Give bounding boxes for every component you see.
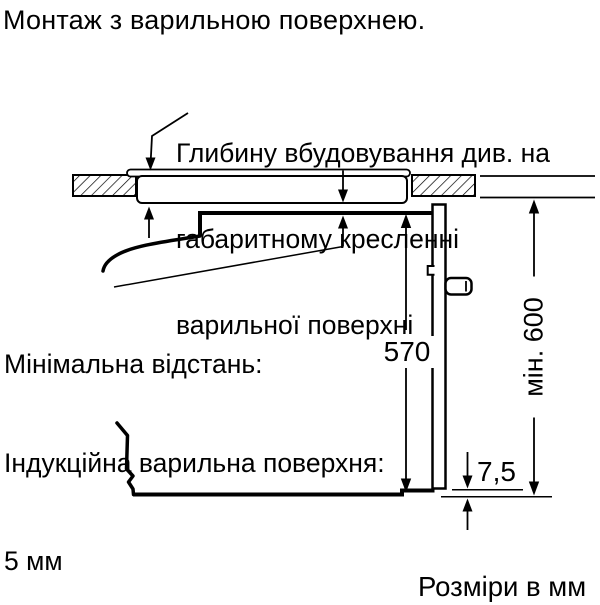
arrowhead-up-icon [463,499,473,512]
countertop-left-hatch [73,175,136,196]
arrowhead-down-icon [463,476,473,489]
dim-label-570: 570 [378,336,436,368]
arrowhead-up-icon [144,207,154,220]
min-distance-line: 5 мм [4,545,405,578]
min-distance-line: Індукційна варильна поверхня: [4,447,405,480]
min-distance-line: Мінімальна відстань: [4,348,405,381]
page-title: Монтаж з варильною поверхнею. [3,5,425,36]
arrowhead-down-icon [529,482,539,496]
dim-label-7-5: 7,5 [477,456,516,488]
depth-note-line: Глибину вбудовування див. на [176,139,550,168]
installation-diagram-page: Монтаж з варильною поверхнею. Глибину вб… [0,0,600,605]
min-distance-note: Мінімальна відстань: Індукційна варильна… [4,283,405,605]
depth-note-line: габаритному кресленні [176,225,550,254]
arrowhead-down-icon [146,158,156,171]
units-note: Розміри в мм [418,571,586,603]
dim-label-min-600: мін. 600 [518,277,550,418]
